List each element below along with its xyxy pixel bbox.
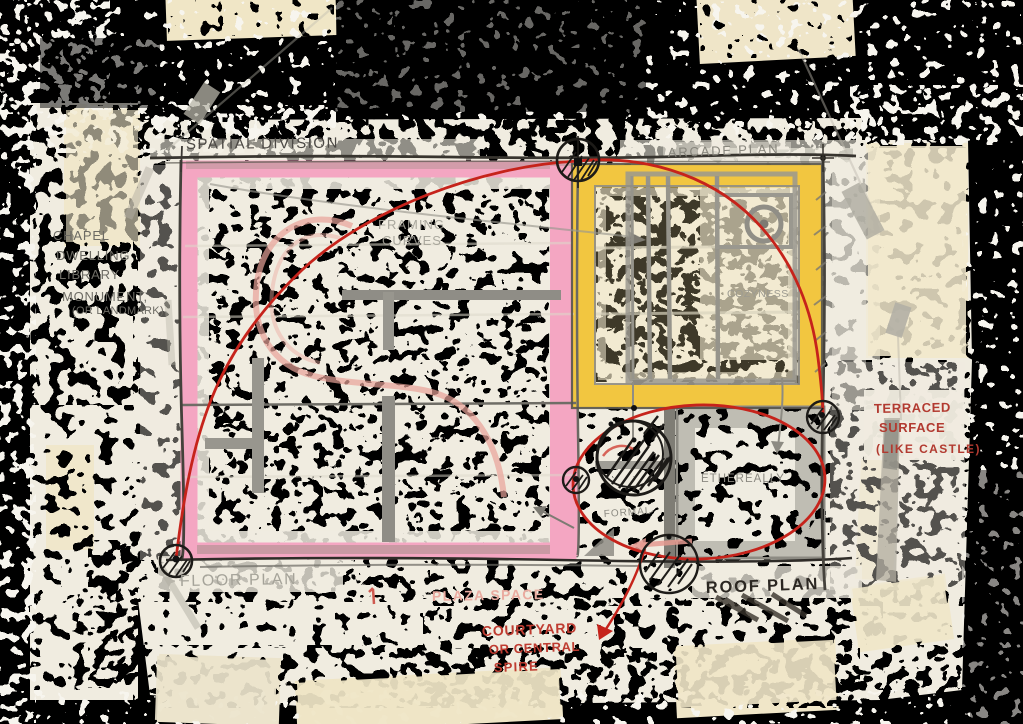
svg-text:CURVES: CURVES xyxy=(382,233,442,248)
svg-text:TERRACED: TERRACED xyxy=(874,400,951,416)
svg-text:(LIKE CASTLE): (LIKE CASTLE) xyxy=(876,442,981,456)
svg-text:FLOOR PLAN: FLOOR PLAN xyxy=(180,571,298,590)
svg-text:FRAMING: FRAMING xyxy=(378,217,445,232)
svg-text:SPATIAL DIVISION: SPATIAL DIVISION xyxy=(186,135,339,153)
svg-text:COURTYARD: COURTYARD xyxy=(482,620,578,639)
svg-text:MONUMENT,: MONUMENT, xyxy=(62,289,148,304)
svg-text:PLAZA SPACE: PLAZA SPACE xyxy=(432,586,545,604)
svg-text:OR CENTRAL: OR CENTRAL xyxy=(489,639,581,657)
svg-text:SURFACE: SURFACE xyxy=(879,420,945,435)
svg-text:SPIRE: SPIRE xyxy=(494,658,540,675)
svg-text:COZYNESS: COZYNESS xyxy=(727,288,789,300)
svg-text:(OR LANDMARK): (OR LANDMARK) xyxy=(72,305,164,317)
svg-text:LIBRARY: LIBRARY xyxy=(59,267,120,282)
svg-text:CHAPEL: CHAPEL xyxy=(53,228,110,243)
svg-text:ETHEREALLY: ETHEREALLY xyxy=(701,473,785,485)
svg-text:DWELLING: DWELLING xyxy=(56,248,130,263)
